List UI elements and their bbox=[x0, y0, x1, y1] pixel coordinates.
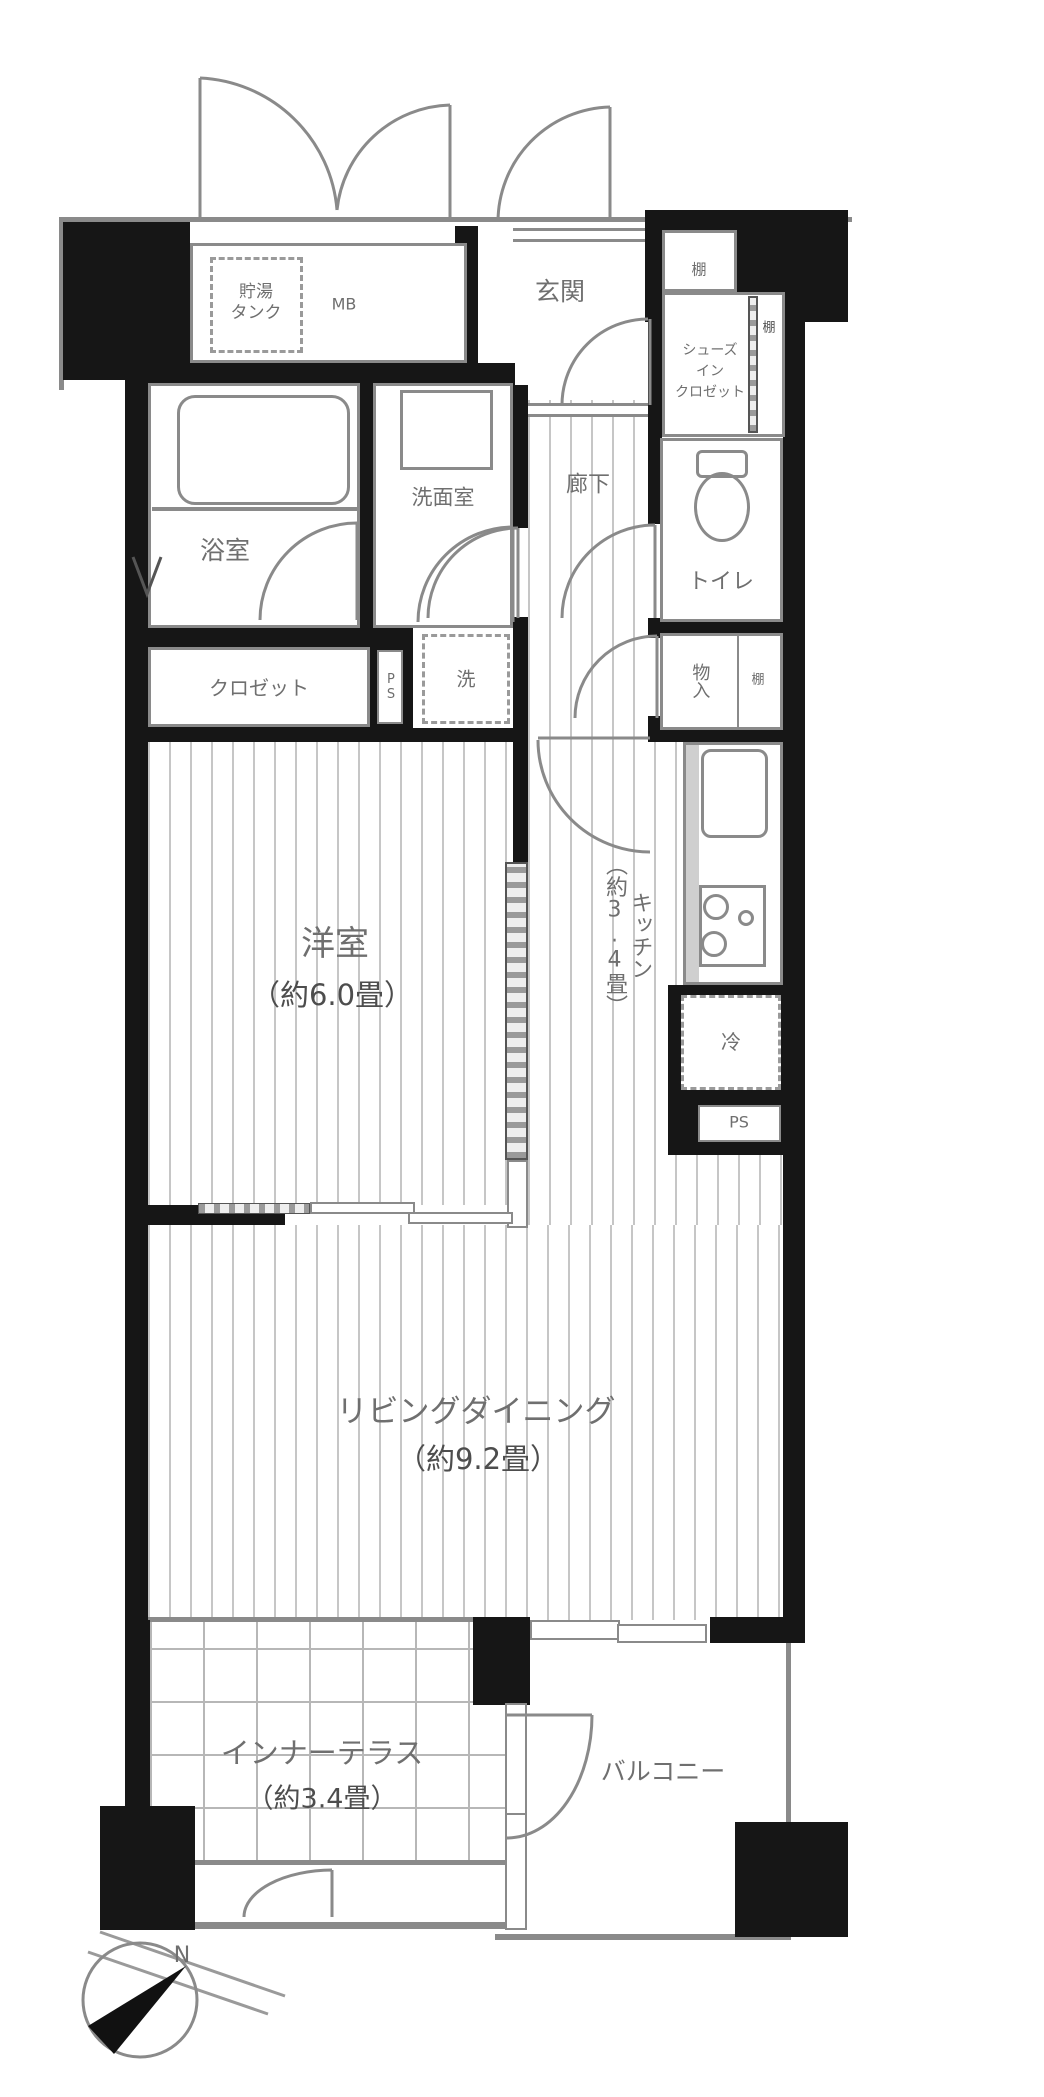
door-arc-storage bbox=[575, 636, 657, 718]
shoes-closet-line1: シューズ bbox=[675, 341, 745, 362]
door-arc-terrace bbox=[244, 1870, 332, 1917]
door-arc-balcony bbox=[507, 1715, 592, 1838]
shelf-label-entry: 棚 bbox=[691, 260, 706, 280]
vent-mark bbox=[133, 557, 161, 594]
toilet-label: トイレ bbox=[688, 569, 754, 598]
compass-north-label: N bbox=[174, 1943, 190, 1968]
washroom-label: 洗面室 bbox=[412, 484, 475, 511]
door-arc-front-door bbox=[498, 107, 610, 222]
storage-label: 物入 bbox=[689, 663, 710, 699]
balcony-label: バルコニー bbox=[601, 1756, 726, 1789]
fridge-label: 冷 bbox=[721, 1029, 741, 1055]
laundry-label: 洗 bbox=[456, 668, 475, 693]
door-arc-mb-right bbox=[337, 105, 450, 222]
closet-label: クロゼット bbox=[209, 675, 309, 701]
shelf-label-shoes: 棚 bbox=[762, 321, 775, 338]
water-tank-line1: 貯湯 bbox=[231, 282, 282, 303]
kitchen-label: キッチン （約3.4畳） bbox=[602, 854, 653, 1017]
meter-box-label: MB bbox=[332, 295, 357, 316]
living-dining-label: リビングダイニング bbox=[337, 1392, 616, 1432]
overlay: N bbox=[0, 0, 1044, 2097]
door-arc-shoes-closet bbox=[562, 319, 650, 405]
living-dining-size: （約9.2畳） bbox=[397, 1441, 559, 1479]
inner-terrace-label: インナーテラス bbox=[221, 1735, 423, 1773]
bathroom-label: 浴室 bbox=[200, 535, 250, 568]
door-arc-mb-left bbox=[200, 78, 337, 222]
ps-box-label: PS bbox=[729, 1113, 749, 1134]
compass-needle bbox=[88, 1966, 186, 2054]
ps-slot-label: PS bbox=[383, 672, 398, 702]
door-arc-bathroom bbox=[260, 523, 357, 620]
door-arc-western-room bbox=[428, 528, 518, 618]
floorplan: N 貯湯 タンク MB 玄関 棚 シューズ イン クロゼット 棚 浴室 洗面室 … bbox=[0, 0, 1044, 2097]
entrance-label: 玄関 bbox=[535, 276, 585, 309]
door-arc-kitchen bbox=[538, 738, 650, 852]
shoes-closet-line2: イン bbox=[675, 362, 745, 383]
shelf-label-storage: 棚 bbox=[751, 673, 764, 690]
western-room-size: （約6.0畳） bbox=[251, 977, 413, 1015]
water-tank-label: 貯湯 タンク bbox=[231, 282, 282, 325]
water-tank-line2: タンク bbox=[231, 303, 282, 324]
shoes-closet-label: シューズ イン クロゼット bbox=[675, 341, 745, 404]
hallway-label: 廊下 bbox=[566, 472, 610, 501]
door-arc-toilet bbox=[562, 525, 655, 618]
western-room-label: 洋室 bbox=[301, 922, 369, 966]
door-arc-washroom bbox=[418, 527, 513, 622]
inner-terrace-size: （約3.4畳） bbox=[247, 1781, 398, 1816]
shoes-closet-line3: クロゼット bbox=[675, 383, 745, 404]
